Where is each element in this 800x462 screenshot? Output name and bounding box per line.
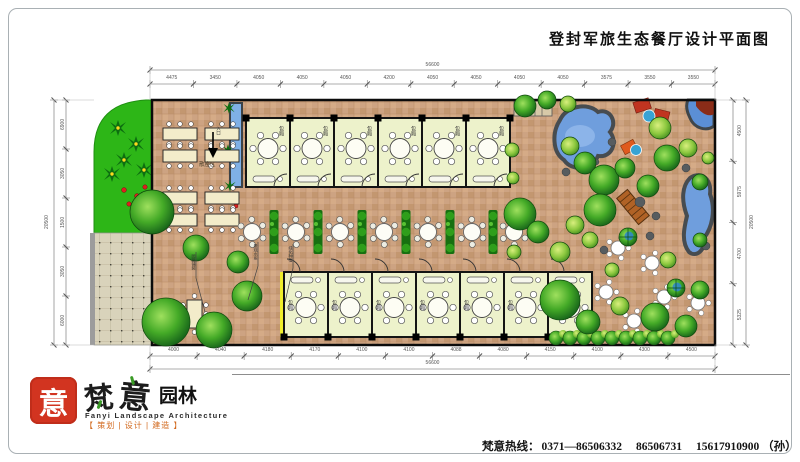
chair: [412, 145, 418, 151]
rect-table: [205, 192, 239, 204]
chair: [167, 164, 172, 169]
chair: [249, 217, 255, 223]
tree: [605, 263, 619, 277]
sofa: [291, 277, 313, 283]
planter-shrub: [270, 244, 278, 252]
chair: [653, 270, 658, 275]
chair: [492, 278, 497, 283]
chair: [383, 317, 389, 323]
chair: [354, 291, 360, 297]
callout-label-3: 绿化种植: [289, 245, 294, 263]
chair: [426, 145, 432, 151]
sofa: [473, 176, 495, 182]
sofa: [379, 277, 401, 283]
chair: [427, 317, 433, 323]
planter-shrub: [489, 228, 497, 236]
chair: [339, 291, 345, 297]
chair: [381, 241, 387, 247]
pillar: [501, 334, 508, 341]
pillar: [243, 115, 250, 122]
dim-value: 4050: [454, 75, 497, 81]
chair: [471, 291, 477, 297]
chair: [414, 223, 420, 229]
tree: [566, 216, 584, 234]
planter-shrub: [446, 244, 454, 252]
tree: [641, 303, 669, 331]
chair: [448, 158, 454, 164]
chair: [204, 303, 209, 308]
rect-table: [163, 128, 197, 140]
dim-value: 4150: [527, 347, 574, 353]
dim-value: 4040: [197, 347, 244, 353]
chair: [433, 132, 439, 138]
planter-shrub: [270, 212, 278, 220]
chair: [220, 228, 225, 233]
round-table: [302, 139, 322, 159]
tree: [582, 232, 598, 248]
pillar: [457, 334, 464, 341]
tree: [660, 252, 676, 268]
dim-value: 3450: [193, 75, 236, 81]
hotline: 梵意热线：0371—865063328650673115617910900 （孙…: [482, 438, 800, 454]
planter-shrub: [446, 212, 454, 220]
rect-table: [205, 128, 239, 140]
chair: [337, 241, 343, 247]
chair: [477, 132, 483, 138]
tree: [561, 137, 579, 155]
chair: [653, 250, 658, 255]
dim-value: 4050: [324, 75, 367, 81]
chair: [360, 158, 366, 164]
dim-value: 4100: [574, 347, 621, 353]
chair: [477, 158, 483, 164]
chair: [623, 325, 628, 330]
chair: [220, 208, 225, 213]
plaza-wall: [90, 233, 95, 345]
round-table: [645, 256, 659, 270]
chair: [345, 132, 351, 138]
sofa: [253, 176, 275, 182]
tree: [232, 281, 262, 311]
dim-value: 4700: [736, 223, 744, 284]
tree: [540, 280, 580, 320]
tree: [550, 242, 570, 262]
tree: [538, 91, 556, 109]
chair: [304, 222, 310, 228]
chair: [442, 317, 448, 323]
chair: [339, 317, 345, 323]
chair: [360, 278, 365, 283]
planter-shrub: [358, 228, 366, 236]
tree: [227, 251, 249, 273]
chair: [381, 217, 387, 223]
round-table: [332, 224, 349, 241]
chair: [699, 310, 704, 315]
chair: [469, 241, 475, 247]
dim-value: 3550: [628, 75, 671, 81]
chair: [470, 145, 476, 151]
dim-value: 5975: [736, 161, 744, 222]
chair: [450, 304, 456, 310]
chair: [318, 304, 324, 310]
chair: [293, 241, 299, 247]
tree: [527, 221, 549, 243]
tree: [615, 158, 635, 178]
chair: [260, 222, 266, 228]
tree: [589, 165, 619, 195]
chair: [530, 291, 536, 297]
sofa: [385, 176, 407, 182]
pillar: [463, 115, 470, 122]
chair: [167, 122, 172, 127]
chair: [282, 223, 288, 229]
tree: [507, 245, 521, 259]
planter-shrub: [489, 244, 497, 252]
round-table: [288, 224, 305, 241]
planter-shrub: [402, 244, 410, 252]
chair: [293, 217, 299, 223]
dim-value: 4088: [432, 347, 479, 353]
tree: [692, 174, 708, 190]
dim-value: 1500: [59, 198, 67, 247]
chair: [338, 145, 344, 151]
room-label: 包厢: [331, 299, 337, 311]
chair: [398, 291, 404, 297]
pillar: [369, 334, 376, 341]
hotline-label: 梵意热线：: [482, 441, 540, 453]
tree: [576, 310, 600, 334]
chair: [326, 223, 332, 229]
room-label: 包厢: [366, 125, 372, 137]
chair: [231, 144, 236, 149]
chair: [635, 308, 640, 313]
planter-shrub: [270, 228, 278, 236]
tree: [637, 175, 659, 197]
chair: [167, 144, 172, 149]
tree: [693, 233, 707, 247]
planter-shrub: [358, 212, 366, 220]
chair: [458, 236, 464, 242]
chair: [404, 158, 410, 164]
tree: [505, 143, 519, 157]
chair: [257, 132, 263, 138]
chair: [480, 222, 486, 228]
room-label: 包厢: [463, 299, 469, 311]
round-table: [384, 298, 404, 318]
rect-table: [163, 150, 197, 162]
chair: [362, 304, 368, 310]
sofa: [423, 277, 445, 283]
chair: [167, 228, 172, 233]
dim-right-total: 20500: [749, 200, 755, 245]
planter-shrub: [314, 228, 322, 236]
chair: [301, 132, 307, 138]
chair: [522, 235, 528, 241]
room-label: 包厢: [454, 125, 460, 137]
chair: [404, 278, 409, 283]
dim-value: 5325: [736, 284, 744, 345]
dim-value: 4000: [150, 347, 197, 353]
planter-shrub: [446, 222, 450, 226]
chair: [427, 291, 433, 297]
dim-value: 4500: [668, 347, 715, 353]
planter-shrub: [358, 222, 362, 226]
sofa: [335, 277, 357, 283]
chair: [209, 228, 214, 233]
round-table: [376, 224, 393, 241]
dim-value: 6000: [59, 296, 67, 345]
round-table: [296, 298, 316, 318]
dim-bottom-total: 56600: [150, 360, 715, 366]
room-label: 包厢: [322, 125, 328, 137]
round-table: [428, 298, 448, 318]
pillar: [419, 115, 426, 122]
chair: [231, 164, 236, 169]
chair: [301, 158, 307, 164]
chair: [436, 235, 442, 241]
dim-value: 4050: [411, 75, 454, 81]
chair: [310, 317, 316, 323]
chair: [209, 186, 214, 191]
brand-suffix: 园林: [159, 386, 197, 407]
open-seating-label: 散座区: [199, 160, 216, 168]
round-table: [464, 224, 481, 241]
chair: [178, 164, 183, 169]
chair: [167, 186, 172, 191]
tree: [679, 139, 697, 157]
chair: [382, 145, 388, 151]
chair: [345, 158, 351, 164]
round-table: [627, 314, 641, 328]
chair: [294, 145, 300, 151]
pillar: [331, 115, 338, 122]
dim-value: 4050: [237, 75, 280, 81]
chair: [189, 208, 194, 213]
chair: [178, 228, 183, 233]
planter-shrub: [489, 222, 493, 226]
chair: [178, 122, 183, 127]
hotline-phone-1: 0371—86506332: [542, 441, 623, 453]
dim-value: 4300: [621, 347, 668, 353]
tree: [654, 145, 680, 171]
chair: [280, 145, 286, 151]
dim-value: 4170: [291, 347, 338, 353]
dim-value: 4200: [367, 75, 410, 81]
chair: [310, 291, 316, 297]
chair: [595, 283, 600, 288]
chair: [687, 294, 692, 299]
planter-shrub: [402, 212, 410, 220]
round-table: [599, 285, 613, 299]
room-label: 包厢: [278, 125, 284, 137]
rect-table: [205, 214, 239, 226]
chair: [456, 145, 462, 151]
dim-left-segments: 69003050150030506000: [59, 100, 67, 345]
hotline-phone-2: 86506731: [636, 441, 682, 453]
chair: [536, 278, 541, 283]
planter-shrub: [314, 212, 322, 220]
brand-english: Fanyi Landscape Architecture: [85, 411, 228, 420]
dim-value: 3050: [59, 247, 67, 296]
chair: [425, 241, 431, 247]
chair: [189, 144, 194, 149]
chair: [295, 291, 301, 297]
chair: [231, 122, 236, 127]
chair: [486, 291, 492, 297]
chair: [614, 289, 619, 294]
sofa: [341, 176, 363, 182]
dim-right-segments: 4500597547005325: [736, 100, 744, 345]
pillar: [281, 334, 288, 341]
chair: [442, 291, 448, 297]
chair: [282, 236, 288, 242]
chair: [595, 296, 600, 301]
chair: [492, 158, 498, 164]
tree: [611, 297, 629, 315]
chair: [354, 317, 360, 323]
chair: [641, 267, 646, 272]
chair: [260, 235, 266, 241]
dim-top-segments: 4475345040504050405042004050405040504050…: [150, 75, 715, 81]
umbrella-top: [673, 283, 682, 292]
round-table: [340, 298, 360, 318]
pillar: [325, 334, 332, 341]
sofa: [511, 277, 533, 283]
chair: [458, 223, 464, 229]
umbrella-top: [625, 232, 634, 241]
tree: [649, 117, 671, 139]
chair: [500, 236, 506, 242]
chair: [486, 317, 492, 323]
planter-shrub: [489, 212, 497, 220]
pillar: [287, 115, 294, 122]
tree: [507, 172, 519, 184]
chair: [189, 164, 194, 169]
sofa: [467, 277, 489, 283]
dim-value: 4050: [280, 75, 323, 81]
chair: [406, 304, 412, 310]
chair: [178, 186, 183, 191]
sofa: [297, 176, 319, 182]
round-table: [420, 224, 437, 241]
chair: [480, 235, 486, 241]
chair: [220, 144, 225, 149]
callout-label-1: 园路铺装: [192, 253, 197, 271]
dim-value: 4080: [480, 347, 527, 353]
chair: [389, 158, 395, 164]
room-label: 包厢: [375, 299, 381, 311]
dim-value: 4500: [736, 100, 744, 161]
planter-shrub: [358, 244, 366, 252]
hotline-phone-3: 15617910900 （孙）: [696, 441, 797, 453]
pillar: [375, 115, 382, 122]
chair: [257, 158, 263, 164]
brand-tagline: 【 策划 | 设计 | 建造 】: [85, 420, 183, 431]
chair: [530, 317, 536, 323]
chair: [178, 208, 183, 213]
chair: [348, 235, 354, 241]
chair: [607, 279, 612, 284]
round-table: [516, 298, 536, 318]
chair: [392, 222, 398, 228]
dim-value: 4050: [541, 75, 584, 81]
pillar: [413, 334, 420, 341]
chair: [316, 278, 321, 283]
entrance-label: 入口: [216, 126, 222, 136]
tree: [130, 190, 174, 234]
room-label: 包厢: [287, 299, 293, 311]
chair: [189, 186, 194, 191]
round-table: [346, 139, 366, 159]
dim-value: 6900: [59, 100, 67, 149]
planter-shrub: [314, 222, 318, 226]
chair: [370, 236, 376, 242]
tree: [514, 95, 536, 117]
dim-left-total: 20500: [44, 200, 50, 245]
chair: [515, 291, 521, 297]
dim-value: 4180: [244, 347, 291, 353]
round-table: [258, 139, 278, 159]
dim-value: 4100: [338, 347, 385, 353]
footer-separator: [232, 374, 790, 375]
chair: [469, 217, 475, 223]
round-table: [244, 224, 261, 241]
chair: [436, 222, 442, 228]
chair: [398, 317, 404, 323]
round-table: [434, 139, 454, 159]
chair: [250, 145, 256, 151]
company-logo: 意 梵意园林 Fanyi Landscape Architecture 【 策划…: [28, 374, 238, 428]
chair: [580, 278, 585, 283]
chair: [272, 158, 278, 164]
chair: [231, 228, 236, 233]
chair: [653, 288, 658, 293]
chair: [231, 208, 236, 213]
round-table: [390, 139, 410, 159]
chair: [178, 144, 183, 149]
dim-value: 3050: [59, 149, 67, 198]
chair: [192, 294, 197, 299]
round-table: [478, 139, 498, 159]
planter-shrub: [402, 222, 406, 226]
tree: [560, 96, 576, 112]
room-label: 包厢: [507, 299, 513, 311]
chair: [316, 158, 322, 164]
chair: [433, 158, 439, 164]
chair: [607, 239, 612, 244]
dim-value: 4050: [498, 75, 541, 81]
tree: [584, 194, 616, 226]
tree: [691, 281, 709, 299]
chair: [641, 254, 646, 259]
dim-bottom-segments: 4000404041804170410041004088408041504100…: [150, 347, 715, 353]
chair: [619, 255, 624, 260]
room-label: 包厢: [410, 125, 416, 137]
chair: [189, 228, 194, 233]
dim-value: 3575: [585, 75, 628, 81]
planter-shrub: [402, 228, 410, 236]
chair: [515, 317, 521, 323]
chair: [189, 122, 194, 127]
chair: [295, 317, 301, 323]
tree: [675, 315, 697, 337]
chair: [425, 217, 431, 223]
seal-character: 意: [39, 379, 69, 423]
chair: [304, 235, 310, 241]
chair: [231, 186, 236, 191]
chair: [238, 223, 244, 229]
chair: [368, 145, 374, 151]
